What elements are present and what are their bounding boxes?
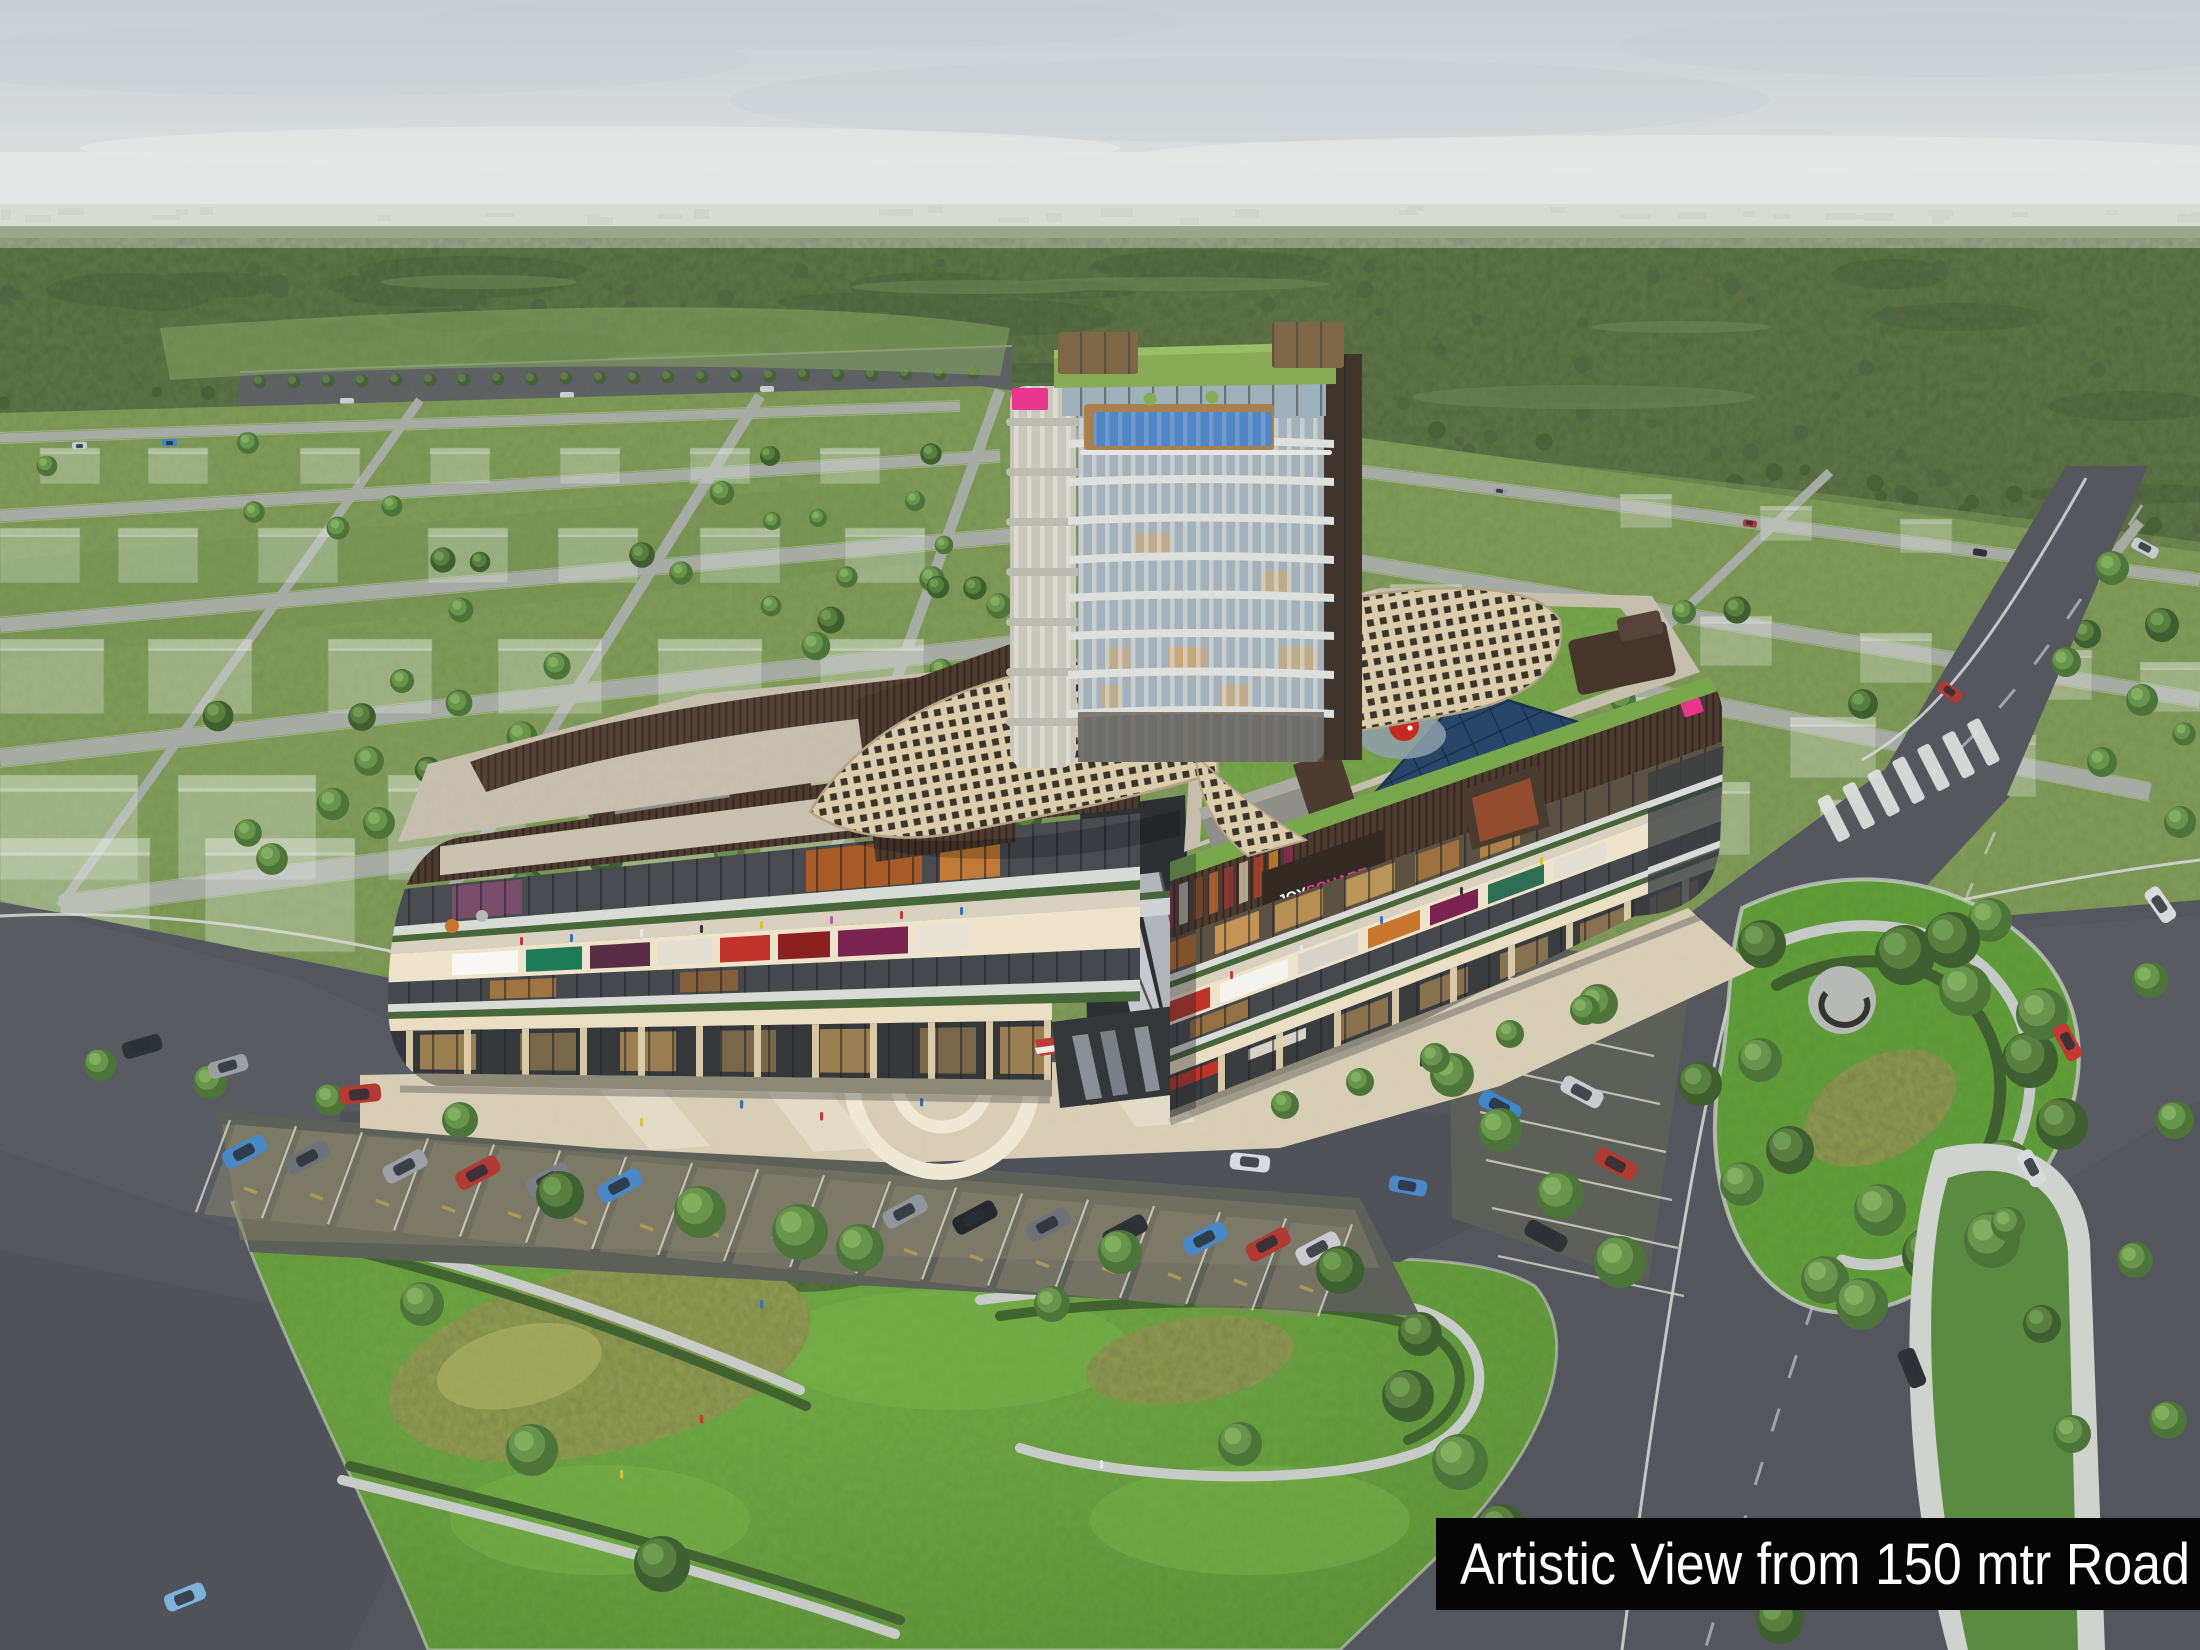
svg-text:Artistic View from 150 mtr Roa: Artistic View from 150 mtr Road xyxy=(1460,1532,2190,1597)
